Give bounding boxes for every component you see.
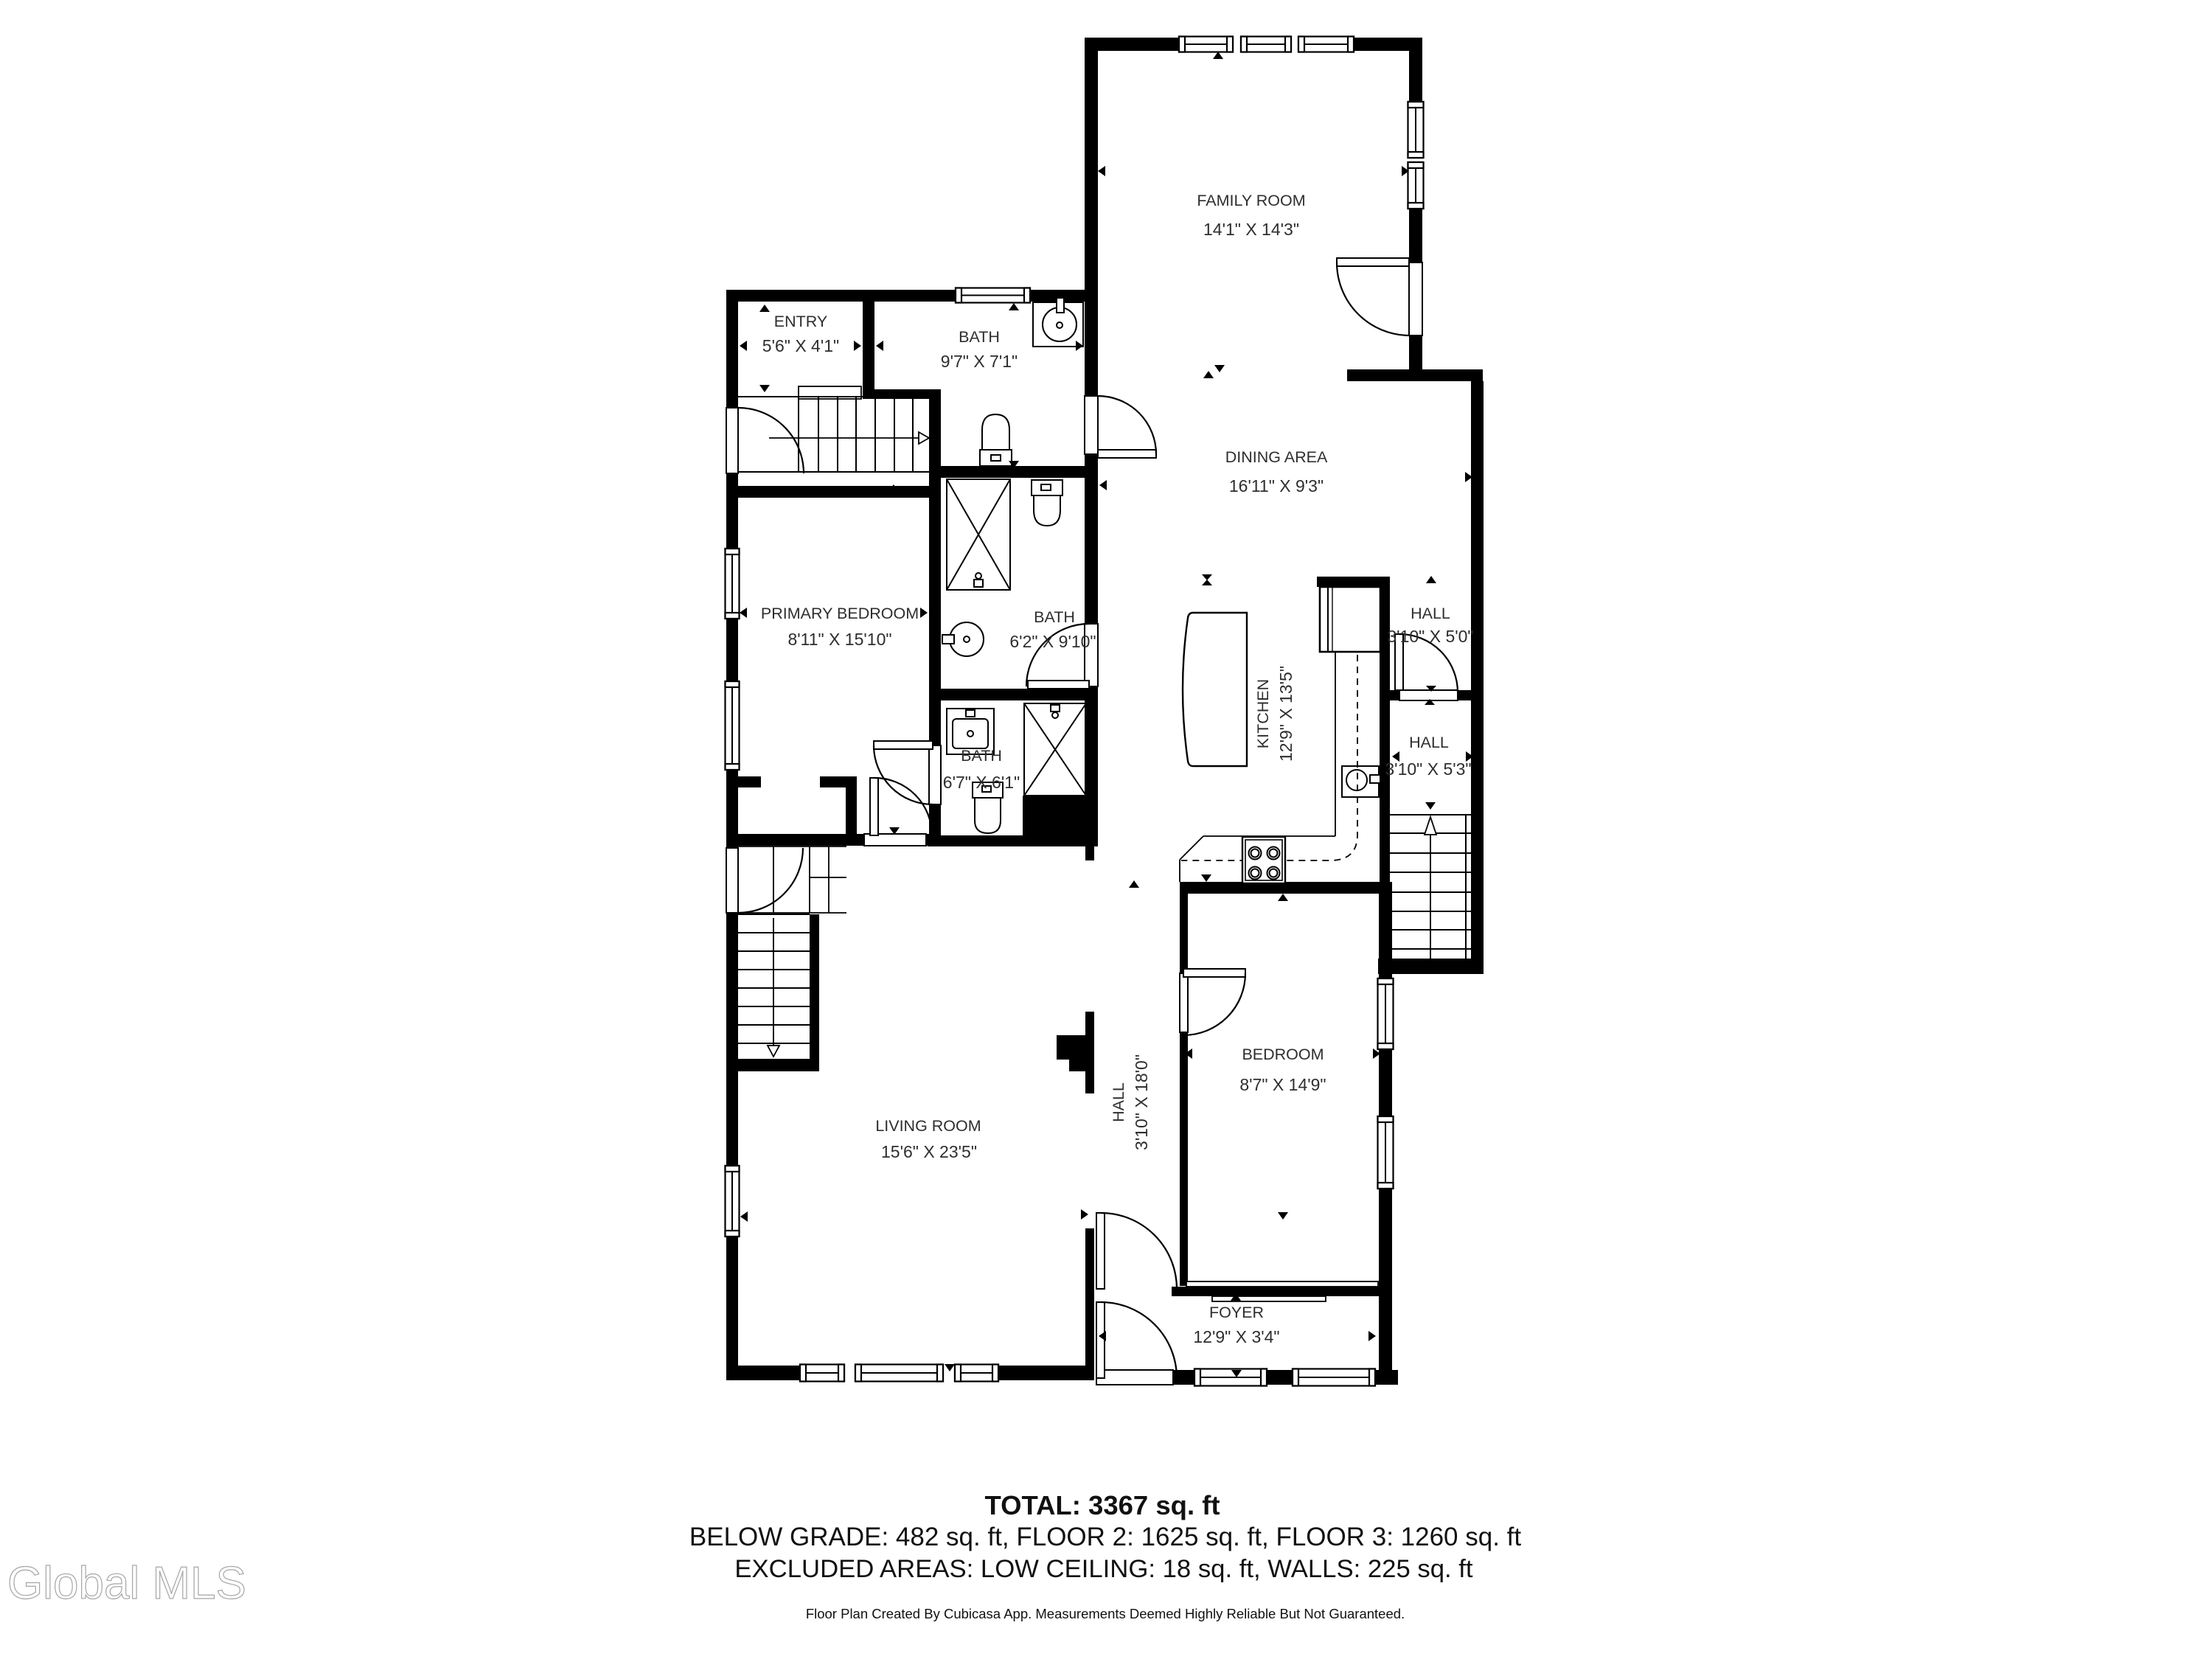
svg-text:3'10" X 5'3": 3'10" X 5'3" (1385, 759, 1471, 779)
svg-text:DINING AREA: DINING AREA (1225, 448, 1328, 466)
svg-text:5'6" X 4'1": 5'6" X 4'1" (762, 336, 839, 355)
svg-text:Global MLS: Global MLS (7, 1558, 246, 1609)
svg-text:Floor Plan Created By Cubicasa: Floor Plan Created By Cubicasa App. Meas… (806, 1606, 1405, 1621)
svg-text:LIVING ROOM: LIVING ROOM (875, 1117, 981, 1135)
svg-text:HALL: HALL (1409, 734, 1449, 751)
svg-text:9'7" X 7'1": 9'7" X 7'1" (941, 352, 1018, 371)
svg-text:HALL: HALL (1411, 605, 1450, 622)
svg-text:KITCHEN: KITCHEN (1254, 679, 1272, 748)
svg-text:EXCLUDED AREAS: LOW CEILING: 1: EXCLUDED AREAS: LOW CEILING: 18 sq. ft, … (734, 1555, 1473, 1583)
svg-text:15'6" X 23'5": 15'6" X 23'5" (881, 1142, 977, 1161)
svg-text:FAMILY ROOM: FAMILY ROOM (1197, 192, 1305, 209)
svg-text:HALL: HALL (1110, 1082, 1127, 1122)
svg-text:14'1" X 14'3": 14'1" X 14'3" (1203, 220, 1299, 239)
svg-text:6'2" X 9'10": 6'2" X 9'10" (1009, 632, 1096, 651)
svg-text:8'7" X 14'9": 8'7" X 14'9" (1239, 1075, 1326, 1094)
svg-text:PRIMARY BEDROOM: PRIMARY BEDROOM (761, 605, 919, 622)
svg-text:BATH: BATH (961, 747, 1002, 765)
svg-text:6'7" X 6'1": 6'7" X 6'1" (943, 773, 1020, 792)
svg-text:3'10" X 5'0": 3'10" X 5'0" (1387, 627, 1473, 646)
svg-text:16'11" X 9'3": 16'11" X 9'3" (1229, 476, 1324, 495)
svg-text:BEDROOM: BEDROOM (1242, 1046, 1324, 1063)
svg-text:3'10" X 18'0": 3'10" X 18'0" (1132, 1054, 1151, 1150)
svg-text:BATH: BATH (1034, 608, 1075, 626)
svg-text:BELOW GRADE: 482 sq. ft, FLOOR: BELOW GRADE: 482 sq. ft, FLOOR 2: 1625 s… (689, 1523, 1522, 1551)
svg-text:TOTAL: 3367 sq. ft: TOTAL: 3367 sq. ft (984, 1490, 1220, 1520)
svg-text:FOYER: FOYER (1209, 1304, 1264, 1321)
svg-text:ENTRY: ENTRY (774, 313, 827, 330)
svg-text:12'9" X 13'5": 12'9" X 13'5" (1276, 666, 1295, 762)
svg-text:12'9" X 3'4": 12'9" X 3'4" (1193, 1327, 1279, 1346)
svg-text:BATH: BATH (959, 328, 1000, 346)
svg-text:8'11" X 15'10": 8'11" X 15'10" (787, 630, 891, 649)
